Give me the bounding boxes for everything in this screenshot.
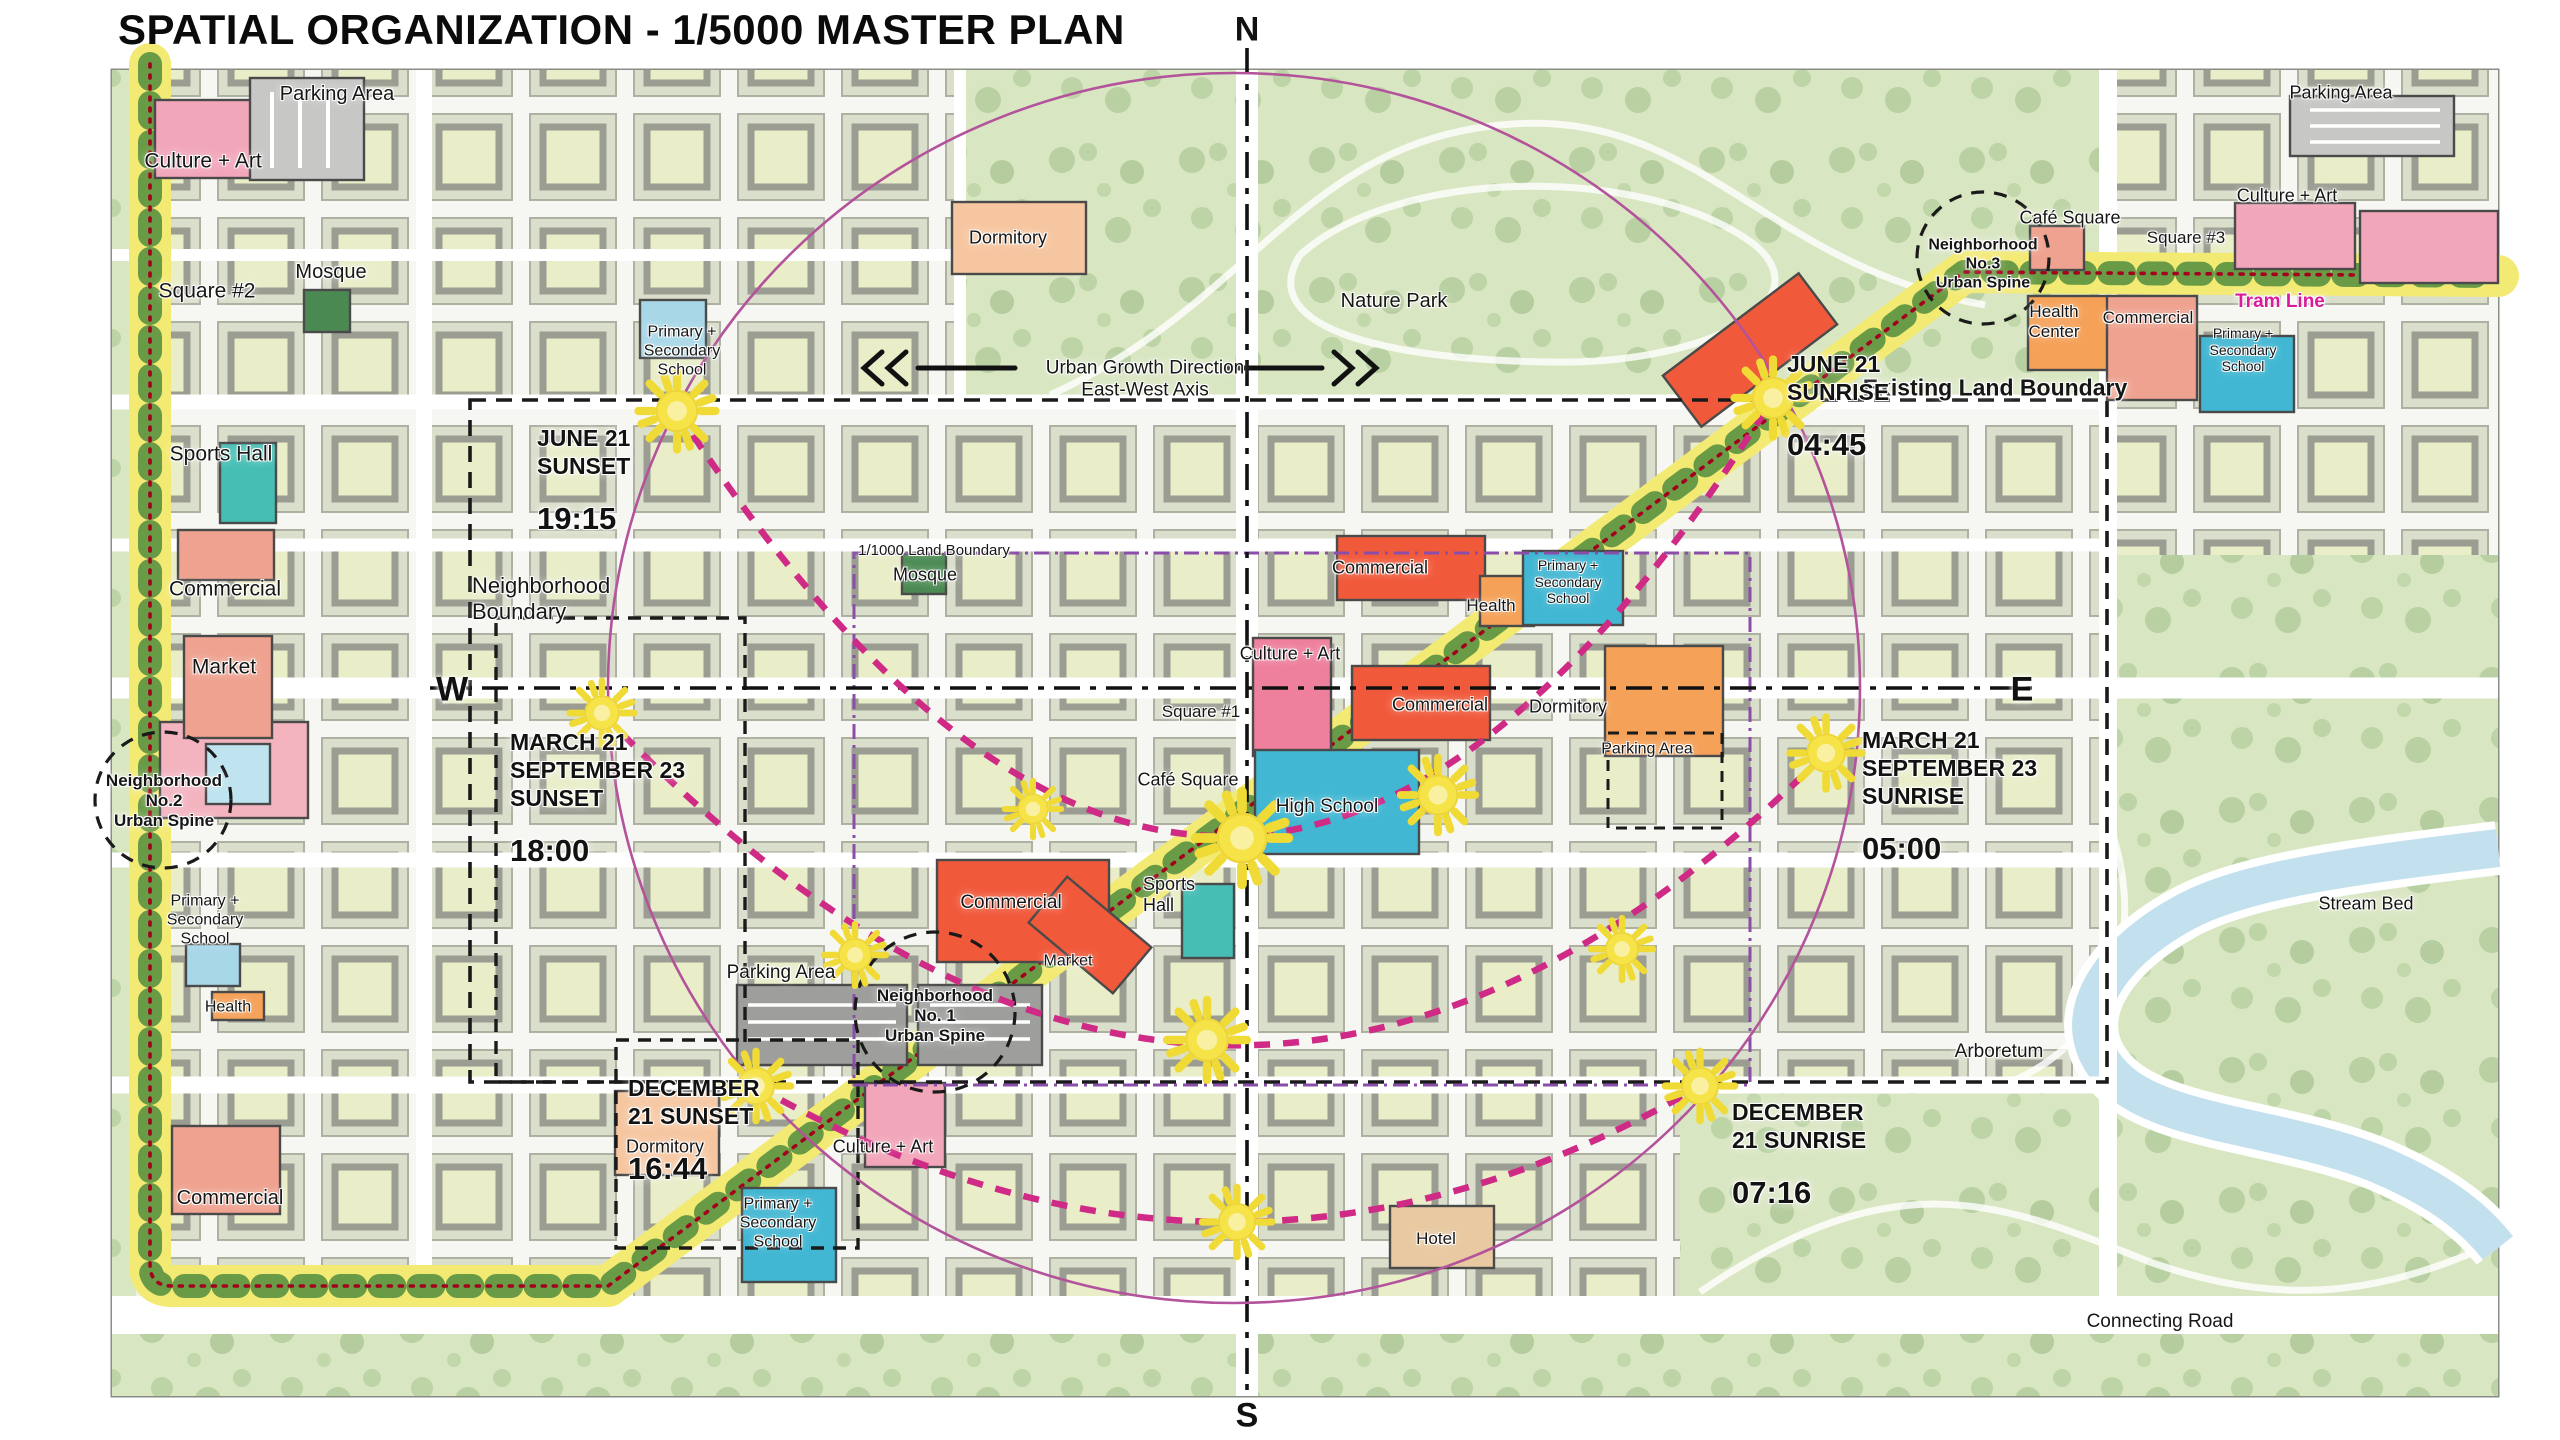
- master-plan-canvas: [0, 0, 2560, 1440]
- master-plan-page: Parking AreaCulture + ArtMosqueSquare #2…: [0, 0, 2560, 1440]
- compass-west: W: [436, 671, 468, 710]
- compass-south: S: [1236, 1397, 1259, 1436]
- compass-north: N: [1235, 11, 1260, 50]
- compass-east: E: [2011, 671, 2034, 710]
- page-title: SPATIAL ORGANIZATION - 1/5000 MASTER PLA…: [118, 6, 1125, 54]
